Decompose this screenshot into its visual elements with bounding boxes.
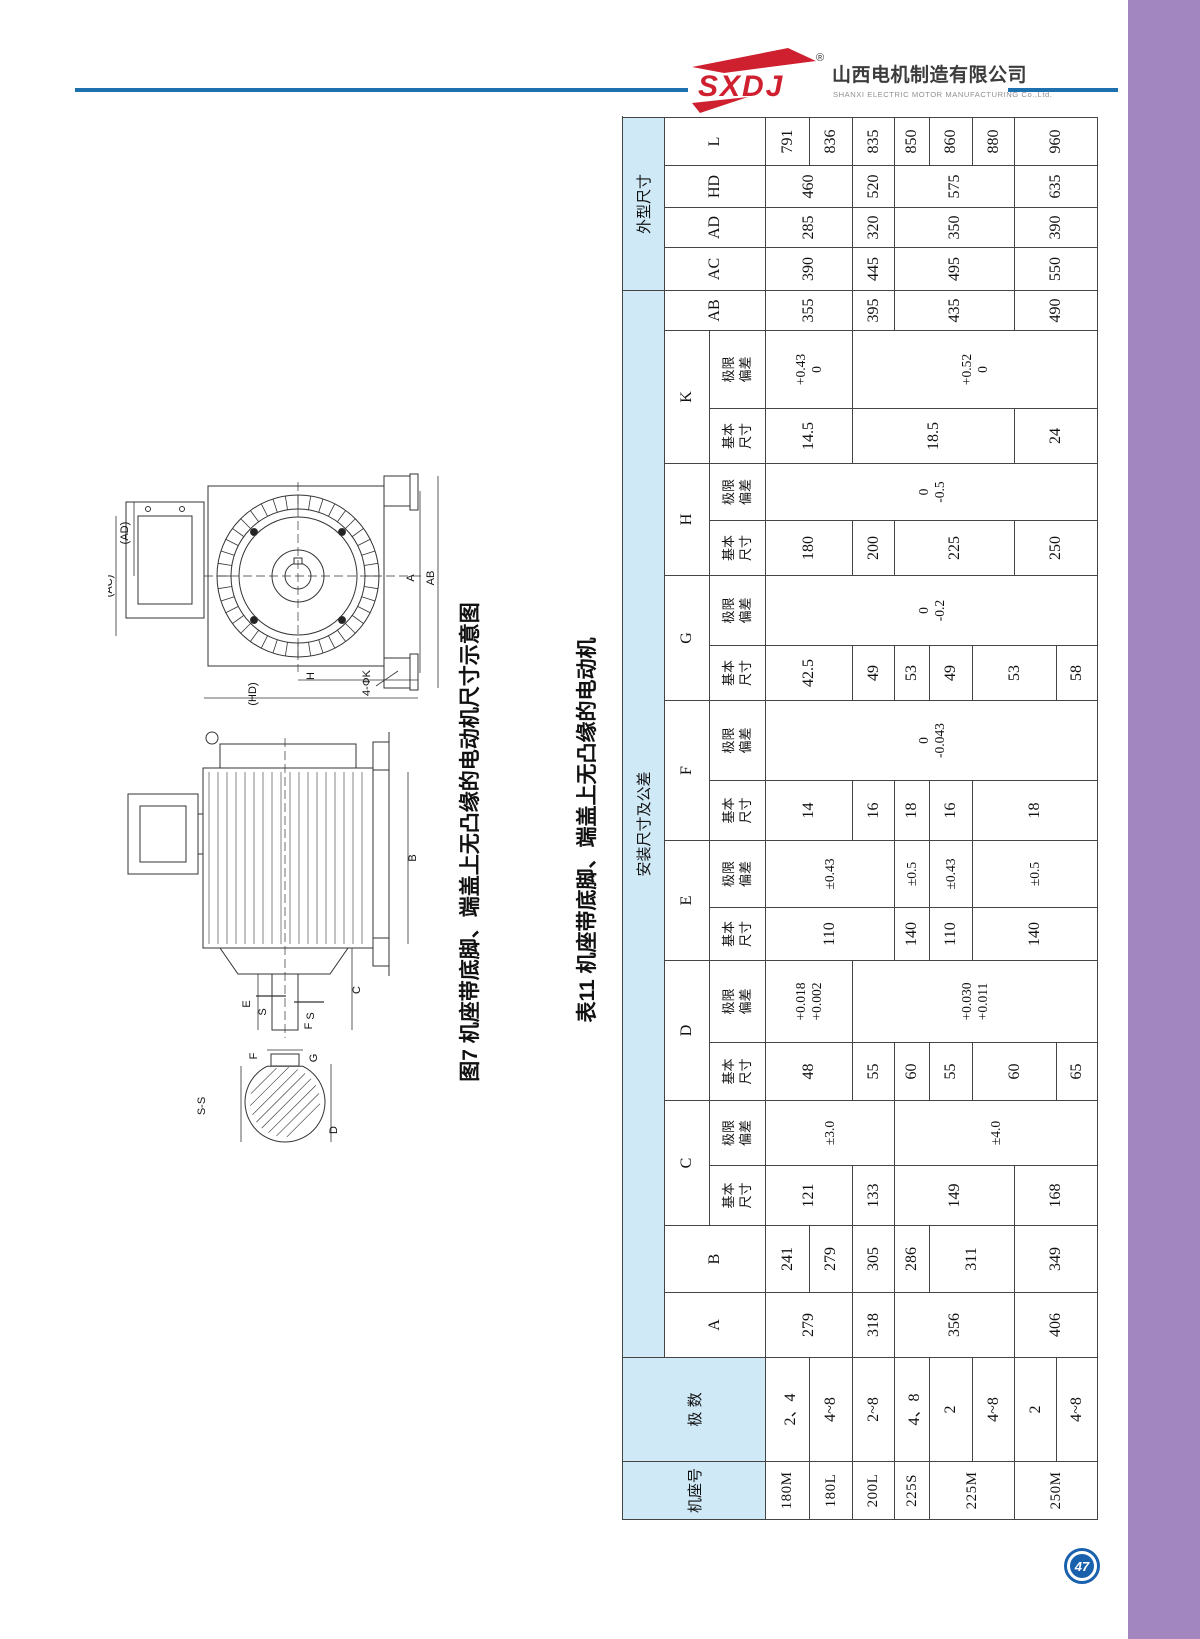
table-cell: 279	[766, 1293, 853, 1358]
table-cell: 48	[766, 1043, 853, 1101]
table-cell: 880	[973, 117, 1015, 165]
table-header-cell: C	[665, 1101, 710, 1226]
table-cell: 435	[895, 290, 1015, 330]
table-cell: 836	[810, 117, 853, 165]
table-header-cell: 极限偏差	[710, 841, 766, 908]
shaft-section-outline	[245, 1066, 325, 1142]
table-cell: ±4.0	[895, 1101, 1098, 1166]
table-cell: 14.5	[766, 409, 853, 464]
table-cell: 860	[930, 117, 973, 165]
table-cell: 390	[1015, 207, 1098, 247]
table-header-cell: AD	[665, 207, 766, 247]
section-mark-s2: S	[305, 1012, 317, 1019]
table-cell: 180L	[810, 1462, 853, 1520]
table-cell: 250	[1015, 521, 1098, 576]
table-cell: 140	[973, 908, 1098, 961]
table-cell: 850	[895, 117, 930, 165]
table-cell: 0 -0.5	[766, 464, 1098, 521]
section-hatching	[250, 1067, 320, 1137]
figure-caption-box: 图7 机座带底脚、端盖上无凸缘的电动机尺寸示意图	[456, 586, 486, 1098]
table-cell: 835	[853, 117, 895, 165]
table-cell: 355	[766, 290, 853, 330]
table-cell: 49	[853, 646, 895, 701]
table-cell: ±3.0	[766, 1101, 895, 1166]
table-header-cell: 极限偏差	[710, 1101, 766, 1166]
table-cell: 24	[1015, 409, 1098, 464]
eye-bolt	[206, 732, 218, 744]
table-cell: 53	[895, 646, 930, 701]
table-cell: 305	[853, 1226, 895, 1293]
table-cell: 356	[895, 1293, 1015, 1358]
dim-label-sec-f: F	[248, 1052, 260, 1059]
table-cell: 2	[930, 1358, 973, 1462]
table-header-cell: 基本尺寸	[710, 1043, 766, 1101]
table-cell: 65	[1057, 1043, 1098, 1101]
dim-label-e: E	[241, 1000, 253, 1007]
catalog-page: SXDJ ® 山西电机制造有限公司 SHANXI ELECTRIC MOTOR …	[0, 0, 1200, 1639]
end-bracket	[220, 948, 348, 974]
foot-side-2	[373, 938, 389, 966]
table-header-cell: D	[665, 961, 710, 1101]
table-cell: 58	[1057, 646, 1098, 701]
dim-label-4-phi-k: 4-ΦK	[361, 669, 373, 696]
figure7-caption: 图7 机座带底脚、端盖上无凸缘的电动机尺寸示意图	[456, 586, 486, 1098]
table-cell: 490	[1015, 290, 1098, 330]
table-header-cell: HD	[665, 165, 766, 207]
table-header-cell: 基本尺寸	[710, 908, 766, 961]
front-view-drawing: (AD) (AC) A AB H (HD) 4-ΦK	[108, 458, 448, 718]
motor-body	[203, 768, 373, 948]
dim-label-ad: (AD)	[119, 522, 131, 545]
table-cell: 250M	[1015, 1462, 1098, 1520]
table-header-cell: 极限偏差	[710, 961, 766, 1043]
dim-label-c: C	[351, 986, 363, 994]
company-logo: SXDJ	[690, 46, 820, 114]
table-cell: 4、8	[895, 1358, 930, 1462]
table-header-cell: B	[665, 1226, 766, 1293]
key-outline	[271, 1054, 299, 1066]
table-cell: 550	[1015, 247, 1098, 290]
table-header-cell: 极限偏差	[710, 464, 766, 521]
foot-top	[384, 476, 410, 506]
company-name-cn: 山西电机制造有限公司	[832, 60, 1027, 87]
table-cell: ±0.5	[973, 841, 1098, 908]
table-caption-box: 表11 机座带底脚、端盖上无凸缘的电动机	[572, 616, 604, 1044]
page-number: 47	[1070, 1554, 1094, 1578]
table-cell: 349	[1015, 1226, 1098, 1293]
table-cell: 168	[1015, 1166, 1098, 1226]
table-header-cell: 极限偏差	[710, 576, 766, 646]
table-cell: +0.43 0	[766, 331, 853, 409]
table-cell: +0.018 +0.002	[766, 961, 853, 1043]
dim-label-f: F	[303, 1022, 315, 1029]
table-cell: 2	[1015, 1358, 1057, 1462]
dim-label-h: H	[305, 672, 317, 680]
table-cell: 575	[895, 165, 1015, 207]
table-cell: 225	[895, 521, 1015, 576]
table-cell: 390	[766, 247, 853, 290]
table-cell: ±0.43	[766, 841, 895, 908]
table-header-cell: AB	[665, 290, 766, 330]
table-cell: 2、4	[766, 1358, 810, 1462]
section-title: S-S	[196, 1097, 208, 1115]
table-cell: 495	[895, 247, 1015, 290]
table-cell: 140	[895, 908, 930, 961]
table-cell: 200L	[853, 1462, 895, 1520]
table-header-cell: E	[665, 841, 710, 961]
table-cell: 0 -0.2	[766, 576, 1098, 646]
table-cell: 320	[853, 207, 895, 247]
table-cell: 18.5	[853, 409, 1015, 464]
table11-caption: 表11 机座带底脚、端盖上无凸缘的电动机	[572, 616, 604, 1044]
dim-label-b: B	[407, 854, 419, 861]
table-cell: 406	[1015, 1293, 1098, 1358]
page-number-badge: 47	[1064, 1548, 1100, 1584]
table-cell: 2~8	[853, 1358, 895, 1462]
table-cell: 49	[930, 646, 973, 701]
dim-label-ab: AB	[425, 571, 437, 586]
body-fins	[209, 772, 362, 944]
table-cell: 55	[930, 1043, 973, 1101]
table-cell: 791	[766, 117, 810, 165]
table-header-cell: H	[665, 464, 710, 576]
table-header-cell: 基本尺寸	[710, 781, 766, 841]
table-header-cell: 机座号	[623, 1462, 766, 1520]
registered-mark: ®	[816, 52, 824, 64]
dim-label-ac: (AC)	[108, 575, 115, 598]
table-cell: 311	[930, 1226, 1015, 1293]
company-name-en: SHANXI ELECTRIC MOTOR MANUFACTURING Co.,…	[833, 90, 1052, 99]
table-cell: 4~8	[973, 1358, 1015, 1462]
table-header-cell: 基本尺寸	[710, 646, 766, 701]
table-cell: 4~8	[810, 1358, 853, 1462]
table-header-cell: 外型尺寸	[623, 117, 665, 290]
table-cell: 60	[895, 1043, 930, 1101]
shaft-section-drawing: S-S F G D	[193, 1044, 345, 1164]
dim-label-a: A	[405, 574, 417, 582]
dimension-table: 机座号极 数安装尺寸及公差外型尺寸ABCDEFGHKABACADHDL基本尺寸极…	[622, 118, 1098, 1520]
table-cell: 55	[853, 1043, 895, 1101]
table-cell: 110	[930, 908, 973, 961]
table-cell: 225S	[895, 1462, 930, 1520]
table-cell: 241	[766, 1226, 810, 1293]
table-cell: 149	[895, 1166, 1015, 1226]
table-cell: 18	[895, 781, 930, 841]
logo-text: SXDJ	[698, 70, 784, 104]
table-cell: 60	[973, 1043, 1057, 1101]
table-cell: 445	[853, 247, 895, 290]
table-cell: 286	[895, 1226, 930, 1293]
table-cell: 121	[766, 1166, 853, 1226]
table-cell: 225M	[930, 1462, 1015, 1520]
table-cell: 350	[895, 207, 1015, 247]
table-cell: 0 -0.043	[766, 701, 1098, 781]
header-rule-left	[75, 88, 688, 92]
table-cell: 279	[810, 1226, 853, 1293]
table-header-cell: 安装尺寸及公差	[623, 290, 665, 1357]
dim-label-sec-d: D	[328, 1126, 340, 1134]
table-header-cell: 极限偏差	[710, 701, 766, 781]
table-cell: 16	[853, 781, 895, 841]
table-cell: 960	[1015, 117, 1098, 165]
table-cell: 180	[766, 521, 853, 576]
foot-bottom	[384, 658, 410, 688]
table-header-cell: 基本尺寸	[710, 1166, 766, 1226]
table-cell: ±0.5	[895, 841, 930, 908]
section-mark-s1: S	[257, 1008, 269, 1015]
table-cell: 180M	[766, 1462, 810, 1520]
table-header-cell: K	[665, 331, 710, 464]
dim-label-hd: (HD)	[247, 682, 259, 705]
table-cell: 53	[973, 646, 1057, 701]
table-header-cell: L	[665, 117, 766, 165]
table-cell: ±0.43	[930, 841, 973, 908]
dim-label-sec-g: G	[308, 1054, 320, 1063]
table-cell: 520	[853, 165, 895, 207]
table-header-cell: 基本尺寸	[710, 409, 766, 464]
table-header-cell: 极 数	[623, 1358, 766, 1462]
table-cell: 16	[930, 781, 973, 841]
table-header-cell: 极限偏差	[710, 331, 766, 409]
table-header-cell: A	[665, 1293, 766, 1358]
table-cell: 460	[766, 165, 853, 207]
table-cell: 14	[766, 781, 853, 841]
fan-cover	[220, 744, 356, 768]
table-header-cell: 基本尺寸	[710, 521, 766, 576]
table-cell: 318	[853, 1293, 895, 1358]
table-cell: 285	[766, 207, 853, 247]
side-view-drawing: B C E F S S	[108, 708, 448, 1042]
table-cell: 4~8	[1057, 1358, 1098, 1462]
table-header-cell: F	[665, 701, 710, 841]
table-cell: 133	[853, 1166, 895, 1226]
table-cell: 18	[973, 781, 1098, 841]
table-cell: 635	[1015, 165, 1098, 207]
table-cell: 110	[766, 908, 895, 961]
table-cell: +0.52 0	[853, 331, 1098, 409]
table-cell: 200	[853, 521, 895, 576]
table-cell: +0.030 +0.011	[853, 961, 1098, 1043]
side-band	[1128, 0, 1200, 1639]
dimension-table-grid: 机座号极 数安装尺寸及公差外型尺寸ABCDEFGHKABACADHDL基本尺寸极…	[622, 117, 1098, 1520]
table-cell: 395	[853, 290, 895, 330]
table-cell: 42.5	[766, 646, 853, 701]
foot-side-1	[373, 742, 389, 770]
table-header-cell: AC	[665, 247, 766, 290]
table-header-cell: G	[665, 576, 710, 701]
